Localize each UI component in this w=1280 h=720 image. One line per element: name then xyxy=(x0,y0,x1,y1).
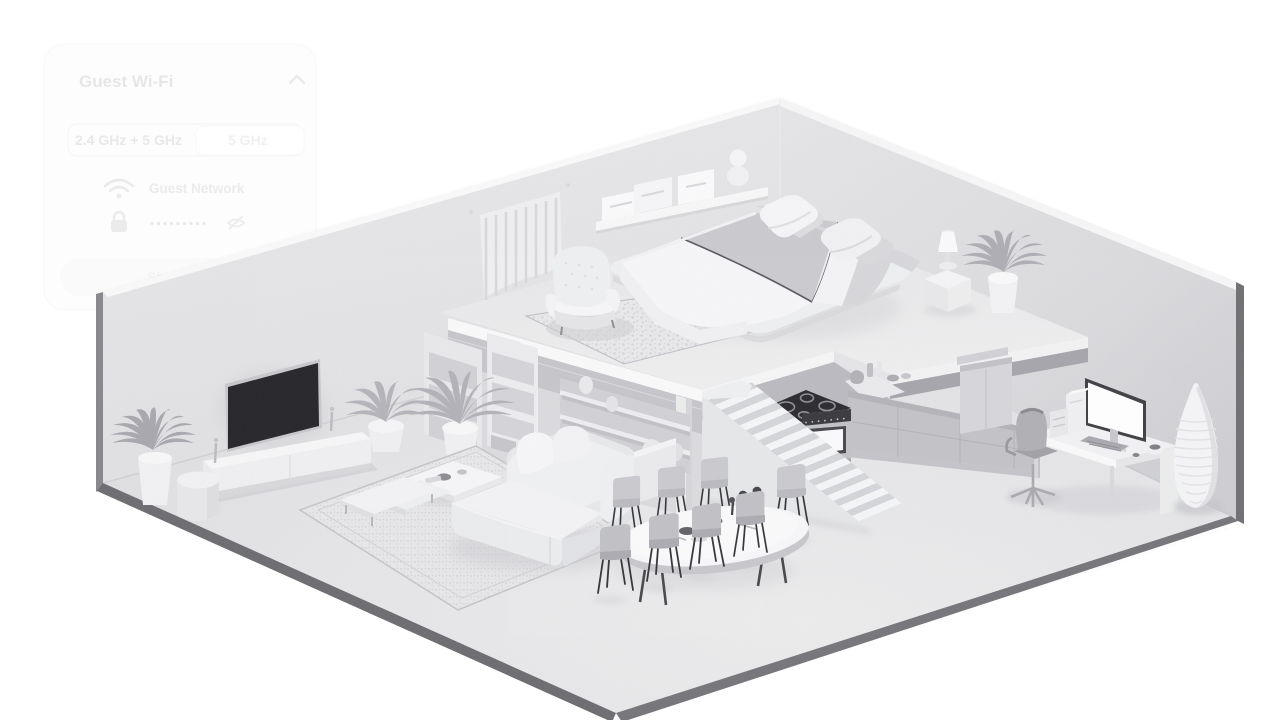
svg-text:5 GHz: 5 GHz xyxy=(228,132,268,148)
svg-text:Guest Wi-Fi: Guest Wi-Fi xyxy=(79,72,173,91)
svg-text:2.4 GHz + 5 GHz: 2.4 GHz + 5 GHz xyxy=(75,132,182,148)
svg-text:Guest Network: Guest Network xyxy=(149,181,245,196)
